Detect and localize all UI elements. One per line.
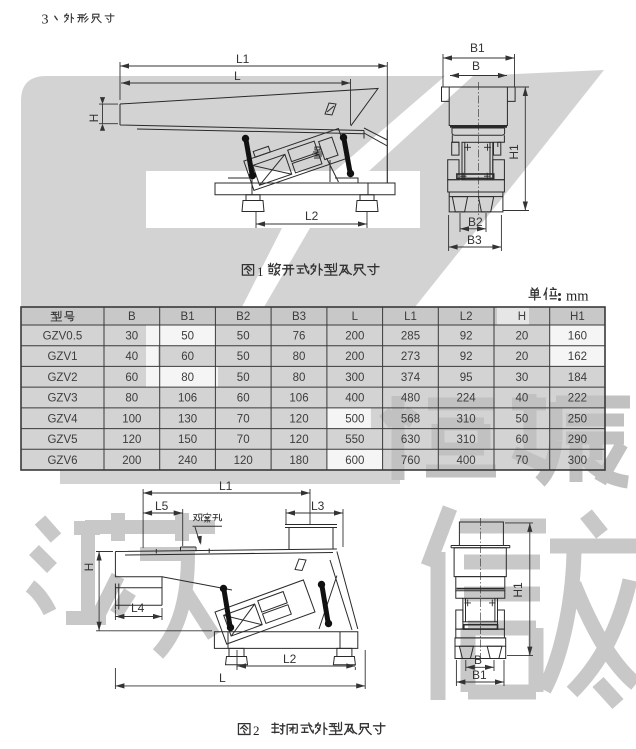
svg-text:80: 80 xyxy=(181,372,194,384)
svg-text:L1: L1 xyxy=(219,479,233,493)
svg-text:224: 224 xyxy=(457,393,477,405)
svg-text:120: 120 xyxy=(289,434,308,446)
svg-text:240: 240 xyxy=(178,455,197,467)
svg-text:H1: H1 xyxy=(570,311,585,323)
svg-text:200: 200 xyxy=(122,455,141,467)
svg-text:GZV2: GZV2 xyxy=(47,372,77,384)
svg-text:200: 200 xyxy=(345,351,364,363)
svg-text:400: 400 xyxy=(457,455,476,467)
svg-text:70: 70 xyxy=(516,455,529,467)
svg-text:50: 50 xyxy=(181,331,194,343)
svg-text:80: 80 xyxy=(293,372,306,384)
svg-text:B1: B1 xyxy=(472,668,487,682)
svg-text:162: 162 xyxy=(568,351,587,363)
svg-text:30: 30 xyxy=(125,331,138,343)
svg-text:70: 70 xyxy=(237,434,250,446)
svg-text:310: 310 xyxy=(457,413,476,425)
svg-text:760: 760 xyxy=(401,455,420,467)
svg-text:285: 285 xyxy=(401,331,420,343)
svg-text:290: 290 xyxy=(568,434,587,446)
svg-text:2: 2 xyxy=(253,723,260,738)
svg-text:550: 550 xyxy=(345,434,364,446)
svg-text:20: 20 xyxy=(516,331,529,343)
svg-text:20: 20 xyxy=(516,351,529,363)
svg-text:L: L xyxy=(234,69,241,83)
svg-text:374: 374 xyxy=(401,372,421,384)
svg-text:50: 50 xyxy=(237,351,250,363)
svg-text:H1: H1 xyxy=(511,582,525,598)
svg-text:222: 222 xyxy=(568,393,587,405)
svg-text:L2: L2 xyxy=(305,209,319,223)
svg-text:568: 568 xyxy=(401,413,420,425)
svg-text:180: 180 xyxy=(289,455,308,467)
svg-text:120: 120 xyxy=(289,413,308,425)
svg-text:3: 3 xyxy=(42,13,49,28)
svg-text:120: 120 xyxy=(122,434,141,446)
svg-text:160: 160 xyxy=(568,331,587,343)
svg-text:H: H xyxy=(87,114,101,123)
svg-text:60: 60 xyxy=(237,393,250,405)
svg-text:600: 600 xyxy=(345,455,364,467)
svg-text:100: 100 xyxy=(122,413,141,425)
svg-text:GZV3: GZV3 xyxy=(47,393,77,405)
svg-text:L1: L1 xyxy=(404,311,417,323)
svg-text:50: 50 xyxy=(237,372,250,384)
svg-text:80: 80 xyxy=(125,393,138,405)
svg-text:1: 1 xyxy=(257,264,264,279)
svg-text:GZV4: GZV4 xyxy=(47,413,78,425)
svg-text:mm: mm xyxy=(566,289,589,305)
svg-text:B2: B2 xyxy=(468,215,483,229)
svg-text:300: 300 xyxy=(345,372,364,384)
svg-text:310: 310 xyxy=(457,434,476,446)
svg-text:L2: L2 xyxy=(460,311,473,323)
svg-text:50: 50 xyxy=(237,331,250,343)
svg-text:B3: B3 xyxy=(292,311,306,323)
svg-text:GZV6: GZV6 xyxy=(47,455,77,467)
svg-text:L2: L2 xyxy=(283,652,297,666)
svg-text:GZV0.5: GZV0.5 xyxy=(43,331,83,343)
svg-text:L: L xyxy=(219,671,226,685)
svg-text:L5: L5 xyxy=(155,499,169,513)
svg-text:400: 400 xyxy=(345,393,364,405)
svg-text:B: B xyxy=(128,311,136,323)
svg-text:B3: B3 xyxy=(467,233,482,247)
svg-text:70: 70 xyxy=(237,413,250,425)
svg-text:B1: B1 xyxy=(181,311,195,323)
svg-text:200: 200 xyxy=(345,331,364,343)
svg-text:106: 106 xyxy=(178,393,197,405)
svg-text:40: 40 xyxy=(125,351,138,363)
svg-text:H: H xyxy=(82,563,96,572)
svg-text:95: 95 xyxy=(460,372,473,384)
svg-text:GZV5: GZV5 xyxy=(47,434,77,446)
svg-text:500: 500 xyxy=(345,413,364,425)
svg-text:L4: L4 xyxy=(131,601,145,615)
svg-text:L: L xyxy=(352,311,359,323)
svg-text:50: 50 xyxy=(516,413,529,425)
svg-text:130: 130 xyxy=(178,413,197,425)
svg-text:GZV1: GZV1 xyxy=(47,351,77,363)
svg-text:273: 273 xyxy=(401,351,420,363)
svg-text:B: B xyxy=(474,653,482,667)
svg-text:60: 60 xyxy=(125,372,138,384)
svg-text:300: 300 xyxy=(568,455,587,467)
svg-text:30: 30 xyxy=(516,372,529,384)
svg-text:60: 60 xyxy=(181,351,194,363)
svg-text:184: 184 xyxy=(568,372,588,384)
svg-text:B2: B2 xyxy=(236,311,250,323)
svg-text:150: 150 xyxy=(178,434,197,446)
svg-text:92: 92 xyxy=(460,331,473,343)
svg-text:H: H xyxy=(518,311,526,323)
svg-text:B: B xyxy=(472,59,480,73)
svg-text:80: 80 xyxy=(293,351,306,363)
svg-text:40: 40 xyxy=(516,393,529,405)
svg-text:L1: L1 xyxy=(236,52,250,66)
svg-text:60: 60 xyxy=(516,434,529,446)
svg-text:B1: B1 xyxy=(470,41,485,55)
svg-text:L3: L3 xyxy=(311,499,325,513)
svg-text:120: 120 xyxy=(234,455,253,467)
svg-text:630: 630 xyxy=(401,434,420,446)
svg-text:250: 250 xyxy=(568,413,587,425)
svg-text:480: 480 xyxy=(401,393,420,405)
svg-text:92: 92 xyxy=(460,351,473,363)
svg-text:H1: H1 xyxy=(507,144,521,160)
svg-text:106: 106 xyxy=(289,393,308,405)
svg-text:76: 76 xyxy=(293,331,306,343)
